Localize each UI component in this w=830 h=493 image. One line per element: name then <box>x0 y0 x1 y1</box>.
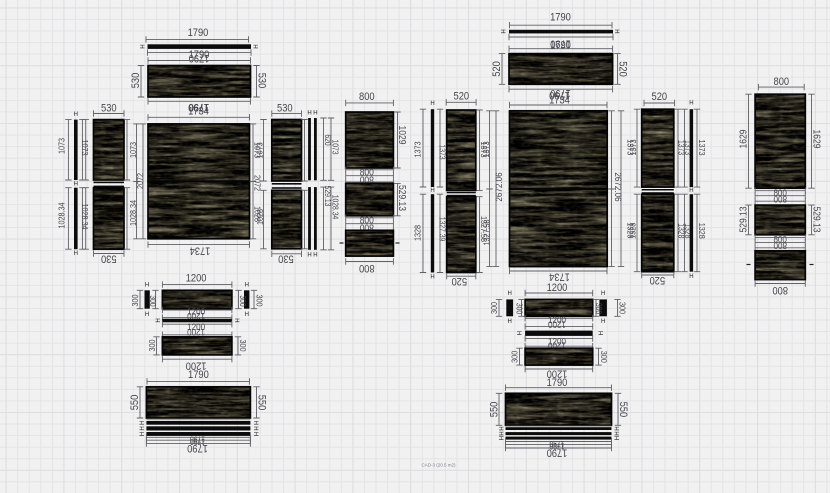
svg-text:1790: 1790 <box>550 11 571 23</box>
svg-text:H: H <box>613 436 619 440</box>
svg-text:1373: 1373 <box>481 141 491 157</box>
svg-text:1790: 1790 <box>547 446 568 458</box>
svg-text:300: 300 <box>514 303 523 315</box>
svg-text:H: H <box>508 319 512 325</box>
svg-text:520: 520 <box>650 274 666 286</box>
svg-text:H: H <box>601 291 605 297</box>
svg-text:1200: 1200 <box>548 319 566 330</box>
svg-text:1373: 1373 <box>412 141 422 157</box>
svg-text:800: 800 <box>359 91 375 103</box>
svg-text:300: 300 <box>130 294 140 306</box>
svg-text:300: 300 <box>148 295 157 307</box>
svg-text:2072: 2072 <box>135 173 145 189</box>
svg-text:2072: 2072 <box>252 175 262 191</box>
svg-text:1790: 1790 <box>188 369 209 381</box>
svg-text:550: 550 <box>617 402 629 418</box>
svg-text:529.13: 529.13 <box>811 207 822 233</box>
svg-text:H: H <box>252 426 258 430</box>
svg-text:1073: 1073 <box>128 142 138 158</box>
svg-text:2672.06: 2672.06 <box>494 172 505 201</box>
svg-text:1028.34: 1028.34 <box>331 195 340 220</box>
svg-text:520: 520 <box>617 61 629 77</box>
svg-text:1734: 1734 <box>190 244 211 256</box>
svg-text:529.13: 529.13 <box>396 185 407 211</box>
svg-text:300: 300 <box>489 302 499 314</box>
svg-text:H: H <box>74 182 78 188</box>
svg-text:1328: 1328 <box>697 223 707 239</box>
svg-text:1328: 1328 <box>412 225 422 241</box>
svg-text:H: H <box>138 44 144 48</box>
svg-text:1790: 1790 <box>549 89 570 101</box>
svg-text:530: 530 <box>130 73 142 89</box>
svg-text:H: H <box>430 188 434 194</box>
svg-text:800: 800 <box>773 240 787 251</box>
svg-text:800: 800 <box>773 193 787 204</box>
svg-text:1790: 1790 <box>189 49 210 61</box>
svg-text:H: H <box>499 29 505 33</box>
svg-text:300: 300 <box>599 351 609 363</box>
svg-text:1200: 1200 <box>547 282 568 294</box>
svg-text:1790: 1790 <box>188 101 209 113</box>
svg-text:1029: 1029 <box>396 126 407 145</box>
svg-text:520: 520 <box>491 61 503 77</box>
svg-text:H: H <box>251 44 257 48</box>
svg-text:800: 800 <box>774 76 790 88</box>
svg-text:H: H <box>245 282 249 288</box>
svg-text:1373: 1373 <box>697 139 707 155</box>
svg-text:300: 300 <box>238 295 247 307</box>
svg-text:H: H <box>689 274 693 280</box>
svg-text:H: H <box>252 432 258 436</box>
svg-text:300: 300 <box>254 294 264 306</box>
svg-text:530: 530 <box>101 102 117 114</box>
svg-text:H: H <box>596 331 602 335</box>
svg-text:H: H <box>245 312 249 318</box>
svg-text:1327.39: 1327.39 <box>438 217 447 242</box>
svg-text:1028: 1028 <box>255 209 265 225</box>
svg-text:H: H <box>689 188 693 194</box>
svg-text:530: 530 <box>277 103 293 115</box>
svg-text:530: 530 <box>101 252 117 264</box>
svg-text:550: 550 <box>488 402 500 418</box>
svg-text:520: 520 <box>451 275 467 287</box>
svg-text:620: 620 <box>323 134 332 146</box>
svg-text:800: 800 <box>359 262 375 274</box>
svg-text:1028.34: 1028.34 <box>128 200 138 226</box>
svg-text:H: H <box>613 426 619 430</box>
svg-text:1734: 1734 <box>549 271 570 283</box>
svg-text:1790: 1790 <box>547 377 568 389</box>
svg-text:1073: 1073 <box>56 138 66 154</box>
svg-text:1373: 1373 <box>628 139 638 155</box>
svg-text:550: 550 <box>129 395 141 411</box>
svg-text:H: H <box>613 29 619 33</box>
svg-text:530: 530 <box>278 253 294 265</box>
svg-text:H: H <box>233 318 239 322</box>
svg-text:520: 520 <box>652 91 668 103</box>
svg-text:520: 520 <box>454 91 470 103</box>
svg-text:H: H <box>307 110 311 116</box>
svg-text:1073: 1073 <box>331 139 340 155</box>
svg-text:1073: 1073 <box>255 142 265 158</box>
svg-text:1328: 1328 <box>628 223 638 239</box>
svg-text:CAD-3 (20.5 m2): CAD-3 (20.5 m2) <box>421 463 456 468</box>
svg-text:800: 800 <box>772 284 788 296</box>
svg-text:530: 530 <box>256 73 268 89</box>
svg-text:H: H <box>74 251 78 257</box>
svg-text:H: H <box>137 432 143 436</box>
svg-text:1200: 1200 <box>187 326 205 337</box>
svg-text:H: H <box>430 101 434 107</box>
svg-text:1073: 1073 <box>80 139 90 155</box>
svg-text:300: 300 <box>617 302 627 314</box>
svg-text:529.13: 529.13 <box>323 186 332 207</box>
svg-text:1373: 1373 <box>438 144 447 160</box>
svg-text:529.13: 529.13 <box>738 206 749 232</box>
svg-text:H: H <box>515 331 521 335</box>
svg-text:H: H <box>154 318 160 322</box>
svg-text:H: H <box>145 312 149 318</box>
svg-text:2672.06: 2672.06 <box>612 172 623 201</box>
svg-text:300: 300 <box>147 339 157 351</box>
svg-text:1790: 1790 <box>550 39 571 51</box>
svg-text:H: H <box>307 253 311 259</box>
svg-text:1629: 1629 <box>738 129 749 148</box>
svg-text:H: H <box>313 110 317 116</box>
svg-text:H: H <box>601 319 605 325</box>
svg-text:H: H <box>252 421 258 425</box>
svg-text:H: H <box>137 426 143 430</box>
svg-text:H: H <box>689 101 693 107</box>
svg-text:H: H <box>430 275 434 281</box>
svg-text:1028.34: 1028.34 <box>56 202 66 228</box>
svg-text:1327.58: 1327.58 <box>481 219 491 245</box>
svg-text:1790: 1790 <box>188 27 209 39</box>
svg-text:300: 300 <box>594 303 603 315</box>
svg-text:300: 300 <box>238 339 248 351</box>
svg-text:1028.34: 1028.34 <box>80 203 90 229</box>
svg-text:300: 300 <box>510 351 520 363</box>
svg-text:H: H <box>74 112 78 118</box>
svg-text:H: H <box>497 426 503 430</box>
svg-text:550: 550 <box>256 395 268 411</box>
svg-text:1629: 1629 <box>811 130 822 149</box>
svg-text:1790: 1790 <box>187 442 208 454</box>
svg-text:H: H <box>313 253 317 259</box>
svg-text:H: H <box>137 421 143 425</box>
svg-text:H: H <box>497 436 503 440</box>
svg-text:H: H <box>508 291 512 297</box>
svg-text:1200: 1200 <box>186 273 207 285</box>
svg-text:H: H <box>145 282 149 288</box>
